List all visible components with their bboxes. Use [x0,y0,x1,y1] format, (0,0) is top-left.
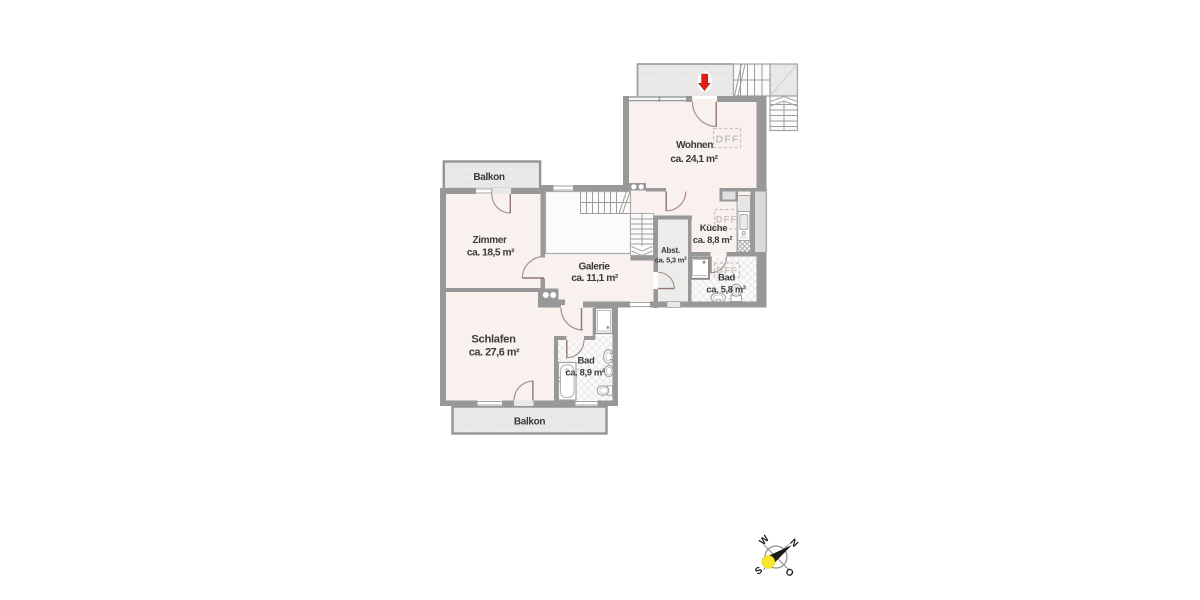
svg-text:ca. 24,1 m²: ca. 24,1 m² [670,154,718,165]
svg-text:Bad: Bad [718,273,736,284]
svg-text:Galerie: Galerie [578,262,610,273]
svg-text:Schlafen: Schlafen [471,334,516,346]
svg-text:ca. 27,6 m²: ca. 27,6 m² [469,347,520,359]
svg-text:O: O [783,566,796,580]
svg-text:N: N [787,537,800,550]
svg-text:ca. 5,3 m²: ca. 5,3 m² [655,255,687,264]
svg-text:DFF: DFF [715,134,739,146]
svg-text:Abst.: Abst. [661,246,680,255]
svg-text:Küche: Küche [700,223,728,234]
svg-text:Zimmer: Zimmer [472,235,506,246]
svg-text:ca. 8,9 m²: ca. 8,9 m² [565,367,604,378]
svg-text:Bad: Bad [577,356,595,367]
svg-text:Balkon: Balkon [473,172,504,183]
svg-text:ca. 8,8 m²: ca. 8,8 m² [693,234,732,245]
svg-text:ca. 18,5 m²: ca. 18,5 m² [467,248,515,259]
svg-text:W: W [757,533,772,548]
svg-text:Balkon: Balkon [514,417,545,428]
svg-text:Wohnen: Wohnen [676,140,713,151]
svg-text:ca. 5,8 m²: ca. 5,8 m² [706,284,745,295]
svg-text:ca. 11,1 m²: ca. 11,1 m² [571,273,619,284]
